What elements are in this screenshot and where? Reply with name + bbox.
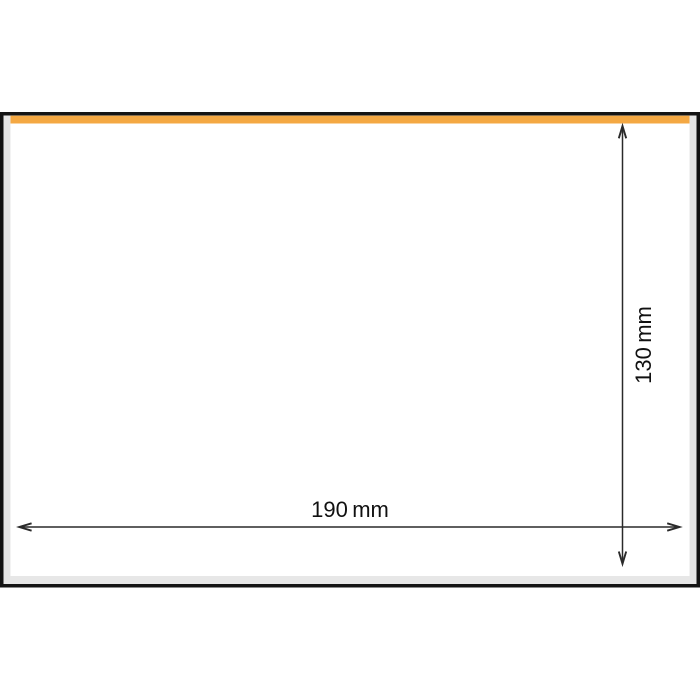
svg-text:190 mm: 190 mm bbox=[311, 497, 389, 522]
svg-text:130 mm: 130 mm bbox=[631, 306, 656, 384]
